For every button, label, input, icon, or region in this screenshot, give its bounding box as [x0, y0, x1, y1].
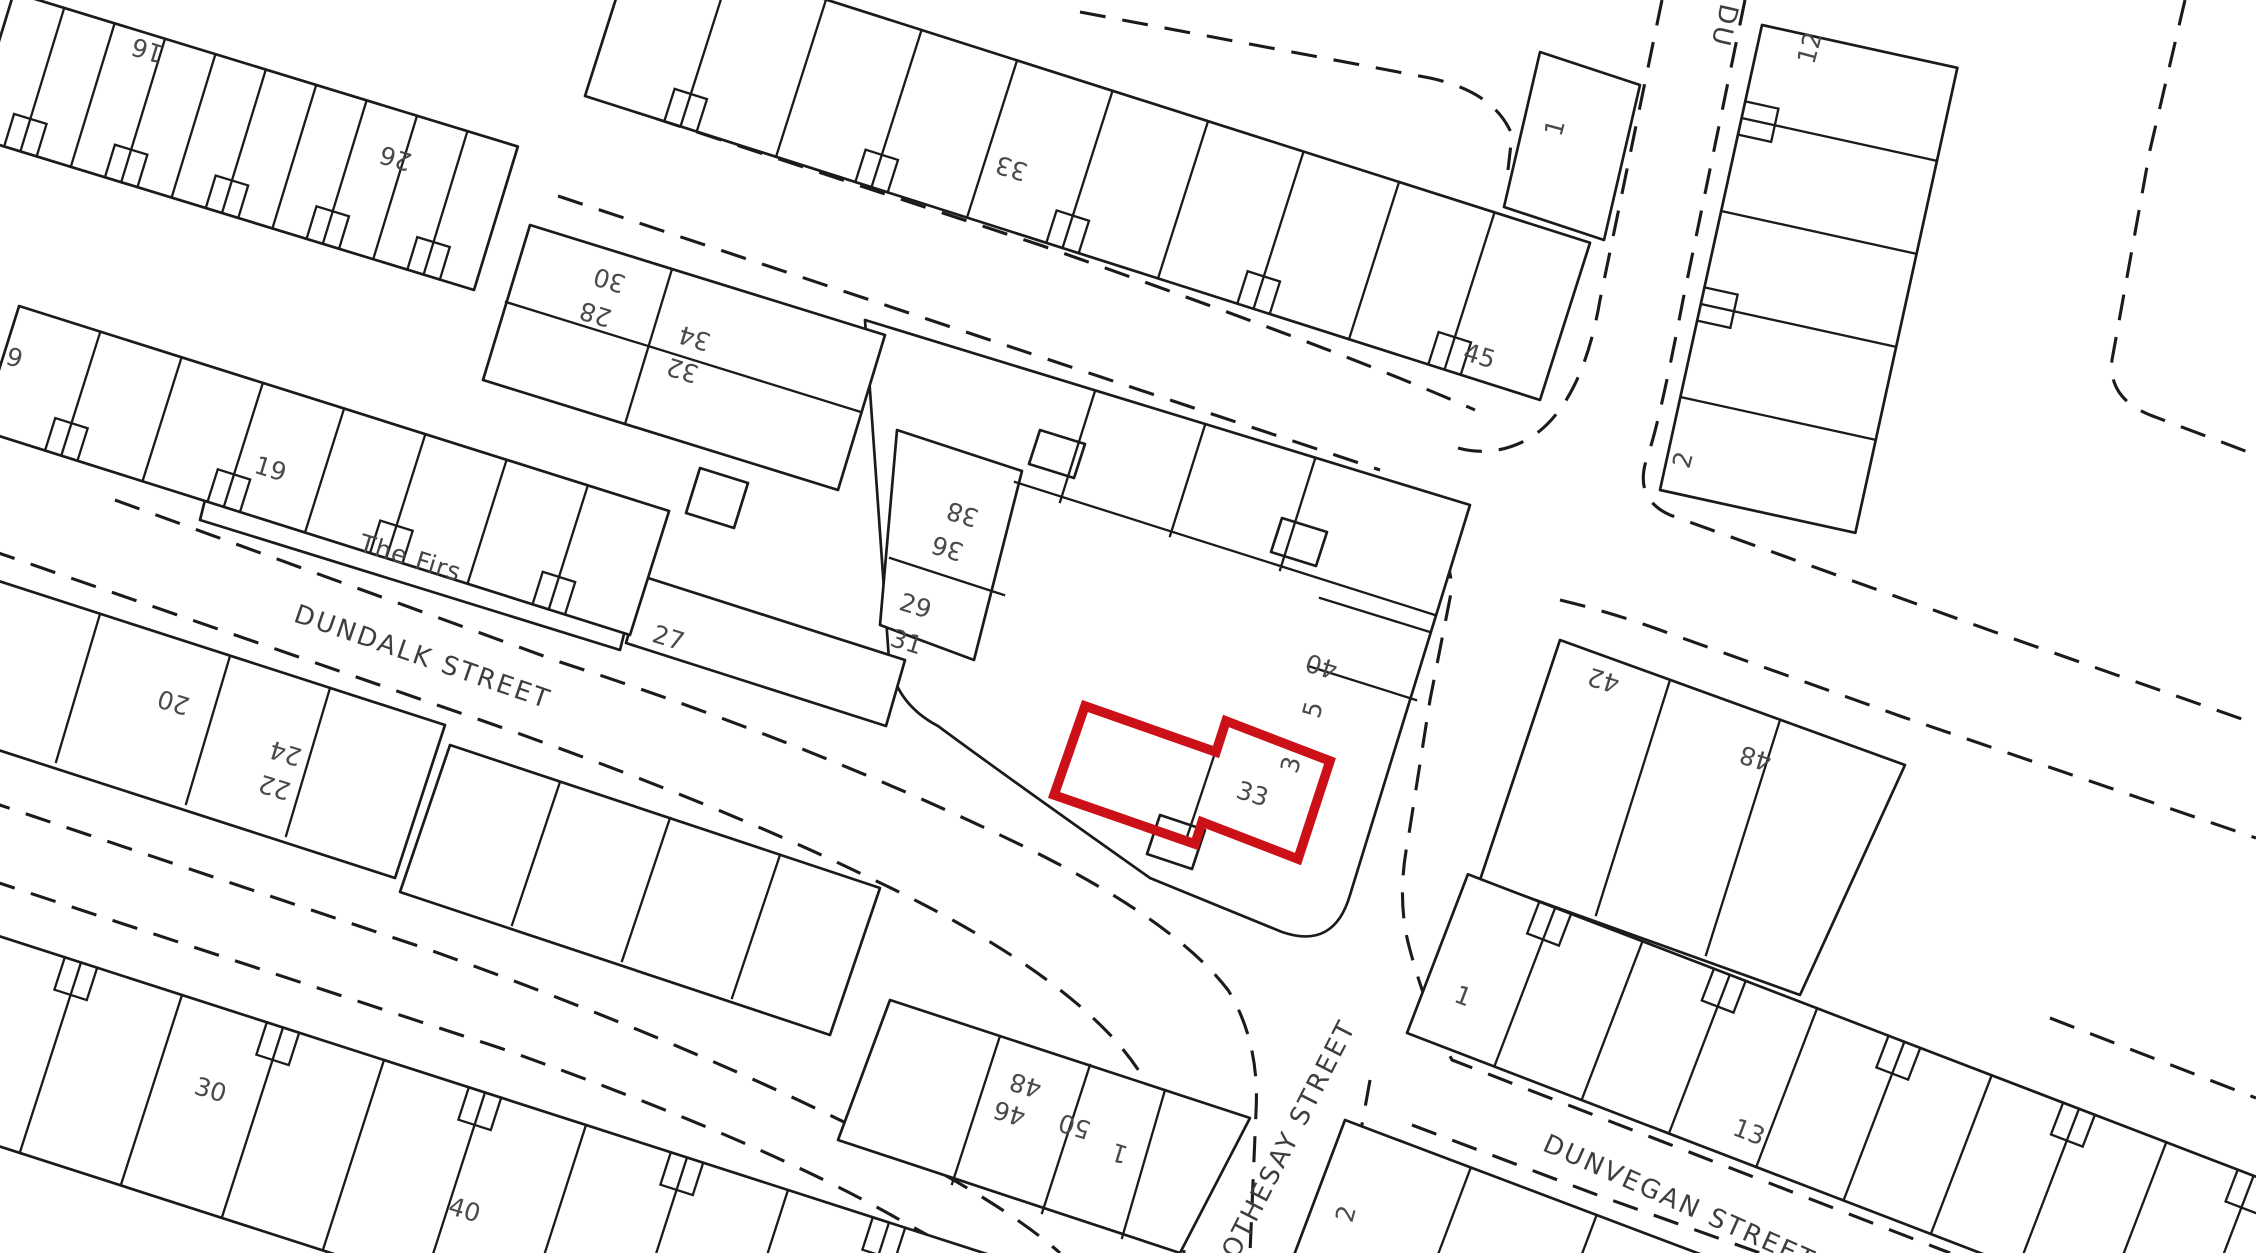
map-canvas: 1626333028343245112291927383629314053334… [0, 0, 2256, 1253]
street-map: 1626333028343245112291927383629314053334… [0, 0, 2256, 1253]
